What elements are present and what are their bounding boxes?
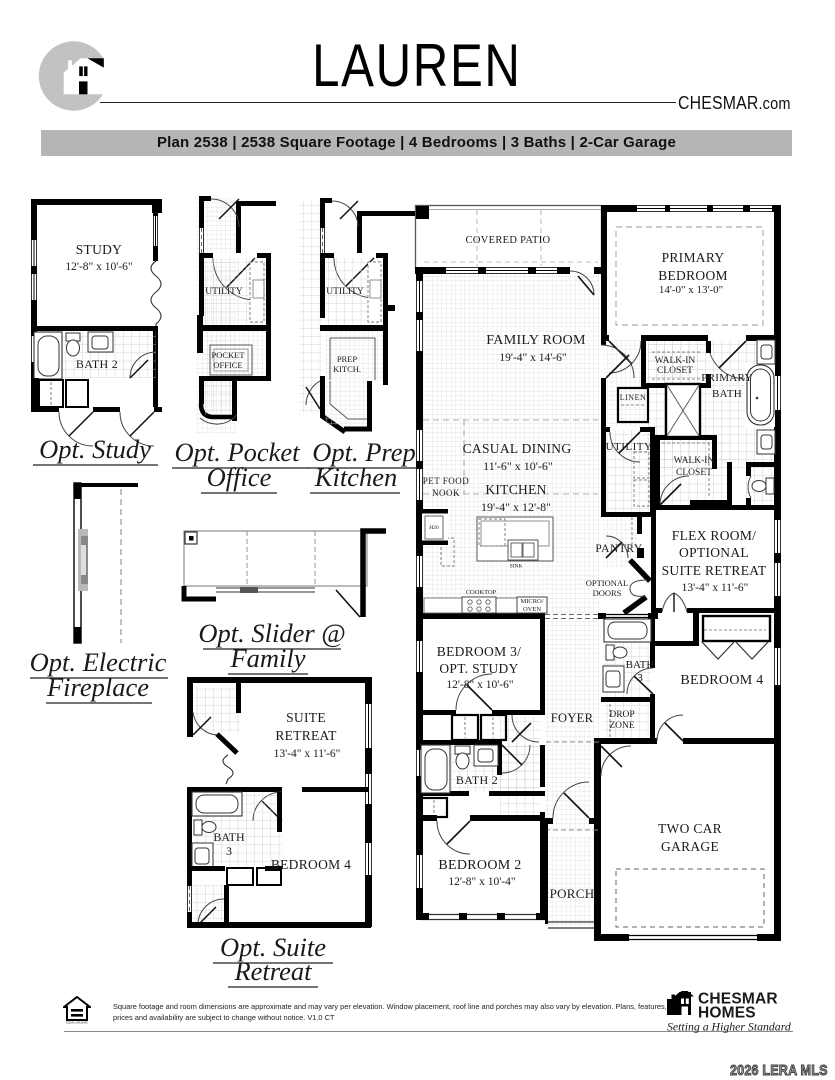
svg-text:RETREAT: RETREAT bbox=[275, 728, 337, 743]
svg-text:COVERED PATIO: COVERED PATIO bbox=[466, 235, 551, 246]
svg-text:SUITE RETREAT: SUITE RETREAT bbox=[662, 563, 767, 578]
svg-text:3: 3 bbox=[637, 672, 643, 684]
svg-text:WALK-IN: WALK-IN bbox=[655, 356, 696, 366]
svg-text:SINK: SINK bbox=[510, 564, 523, 570]
svg-text:19'-4" x 14'-6": 19'-4" x 14'-6" bbox=[499, 352, 566, 364]
svg-text:BATH: BATH bbox=[213, 830, 245, 844]
svg-text:ZONE: ZONE bbox=[609, 721, 635, 731]
svg-text:STUDY: STUDY bbox=[76, 242, 123, 257]
svg-text:BEDROOM 4: BEDROOM 4 bbox=[680, 673, 763, 688]
svg-text:WALK-IN: WALK-IN bbox=[674, 456, 715, 466]
svg-text:Office: Office bbox=[207, 462, 272, 492]
svg-text:Opt. Study: Opt. Study bbox=[39, 434, 151, 464]
svg-text:12'-8" x 10'-4": 12'-8" x 10'-4" bbox=[448, 876, 515, 888]
svg-text:3: 3 bbox=[226, 844, 232, 858]
svg-text:12'-8" x 10'-6": 12'-8" x 10'-6" bbox=[65, 261, 132, 273]
svg-text:19'-4" x 12'-8": 19'-4" x 12'-8" bbox=[481, 500, 551, 514]
svg-text:BEDROOM: BEDROOM bbox=[658, 268, 728, 283]
svg-text:Kitchen: Kitchen bbox=[314, 462, 397, 492]
svg-text:NOOK: NOOK bbox=[432, 488, 460, 498]
svg-text:PORCH: PORCH bbox=[550, 886, 595, 901]
svg-text:UTILITY: UTILITY bbox=[326, 287, 364, 297]
svg-text:PRIMARY: PRIMARY bbox=[701, 372, 753, 384]
svg-text:BATH: BATH bbox=[712, 388, 742, 400]
svg-text:FLEX ROOM/: FLEX ROOM/ bbox=[672, 528, 756, 543]
svg-text:KITCHEN: KITCHEN bbox=[485, 482, 546, 497]
svg-text:CLOSET: CLOSET bbox=[676, 468, 712, 478]
svg-text:Retreat: Retreat bbox=[233, 956, 312, 986]
svg-text:DOORS: DOORS bbox=[593, 588, 622, 598]
svg-text:H20: H20 bbox=[429, 525, 439, 531]
svg-text:11'-6" x 10'-6": 11'-6" x 10'-6" bbox=[483, 459, 553, 473]
svg-text:BEDROOM 4: BEDROOM 4 bbox=[271, 857, 351, 872]
svg-text:BATH: BATH bbox=[626, 659, 655, 671]
svg-text:14'-0" x 13'-0": 14'-0" x 13'-0" bbox=[659, 284, 723, 296]
svg-text:Setting a Higher Standard: Setting a Higher Standard bbox=[667, 1020, 791, 1034]
svg-text:OPT. STUDY: OPT. STUDY bbox=[439, 661, 518, 676]
svg-text:OPTIONAL: OPTIONAL bbox=[586, 578, 629, 588]
svg-text:TWO CAR: TWO CAR bbox=[658, 821, 722, 836]
svg-text:OVEN: OVEN bbox=[523, 606, 541, 613]
svg-text:DROP: DROP bbox=[609, 710, 634, 720]
svg-text:PET FOOD: PET FOOD bbox=[423, 476, 470, 486]
svg-text:UTILITY: UTILITY bbox=[205, 287, 243, 297]
svg-text:Family: Family bbox=[229, 643, 305, 673]
svg-text:PREP: PREP bbox=[337, 354, 358, 364]
svg-text:EQUAL HOUSING: EQUAL HOUSING bbox=[66, 1021, 88, 1025]
svg-text:SUITE: SUITE bbox=[286, 710, 326, 725]
svg-text:UTILITY: UTILITY bbox=[606, 441, 653, 453]
svg-text:COOKTOP: COOKTOP bbox=[466, 589, 497, 596]
svg-text:MICRO/: MICRO/ bbox=[520, 598, 543, 605]
svg-text:12'-8" x 10'-6": 12'-8" x 10'-6" bbox=[446, 679, 513, 691]
svg-text:GARAGE: GARAGE bbox=[661, 839, 719, 854]
svg-text:POCKET: POCKET bbox=[211, 350, 245, 360]
svg-text:FAMILY ROOM: FAMILY ROOM bbox=[486, 333, 586, 348]
svg-text:BEDROOM 3/: BEDROOM 3/ bbox=[437, 644, 521, 659]
svg-text:OFFICE: OFFICE bbox=[213, 360, 242, 370]
svg-text:PRIMARY: PRIMARY bbox=[662, 250, 725, 265]
svg-text:CASUAL DINING: CASUAL DINING bbox=[463, 441, 572, 456]
svg-text:OPTIONAL: OPTIONAL bbox=[679, 545, 749, 560]
svg-text:KITCH.: KITCH. bbox=[333, 364, 361, 374]
svg-text:CLOSET: CLOSET bbox=[657, 366, 693, 376]
svg-text:13'-4" x 11'-6": 13'-4" x 11'-6" bbox=[682, 582, 749, 594]
svg-text:LINEN: LINEN bbox=[620, 393, 647, 402]
svg-text:BEDROOM 2: BEDROOM 2 bbox=[438, 858, 521, 873]
svg-text:PANTRY: PANTRY bbox=[595, 543, 643, 555]
svg-text:FOYER: FOYER bbox=[551, 711, 594, 725]
svg-text:BATH 2: BATH 2 bbox=[456, 773, 498, 787]
svg-text:BATH 2: BATH 2 bbox=[76, 357, 118, 371]
svg-text:Fireplace: Fireplace bbox=[46, 672, 149, 702]
svg-text:13'-4" x 11'-6": 13'-4" x 11'-6" bbox=[274, 748, 341, 760]
